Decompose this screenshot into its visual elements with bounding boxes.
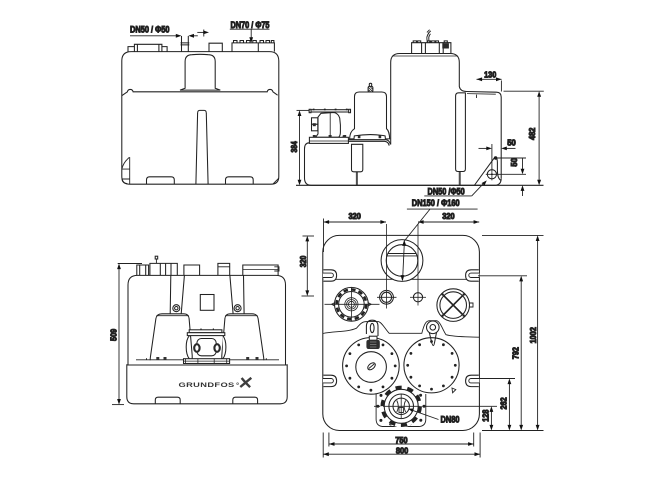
svg-text:128: 128 xyxy=(481,409,491,421)
svg-text:482: 482 xyxy=(527,127,537,140)
svg-text:384: 384 xyxy=(289,141,299,152)
svg-text:130: 130 xyxy=(484,69,496,79)
svg-text:50: 50 xyxy=(507,138,516,148)
svg-text:320: 320 xyxy=(349,211,362,221)
svg-text:50: 50 xyxy=(509,158,519,167)
svg-text:509: 509 xyxy=(109,329,119,341)
svg-text:262: 262 xyxy=(499,397,509,409)
svg-text:792: 792 xyxy=(511,347,521,359)
svg-text:750: 750 xyxy=(395,435,408,445)
svg-text:DN80: DN80 xyxy=(441,414,460,425)
svg-text:1002: 1002 xyxy=(528,327,538,343)
svg-text:320: 320 xyxy=(442,211,455,221)
svg-text:DN150 / Φ160: DN150 / Φ160 xyxy=(412,198,460,209)
svg-text:GRUNDFOS: GRUNDFOS xyxy=(179,381,235,388)
svg-text:DN50 / Φ50: DN50 / Φ50 xyxy=(130,25,170,36)
svg-text:320: 320 xyxy=(298,256,308,268)
